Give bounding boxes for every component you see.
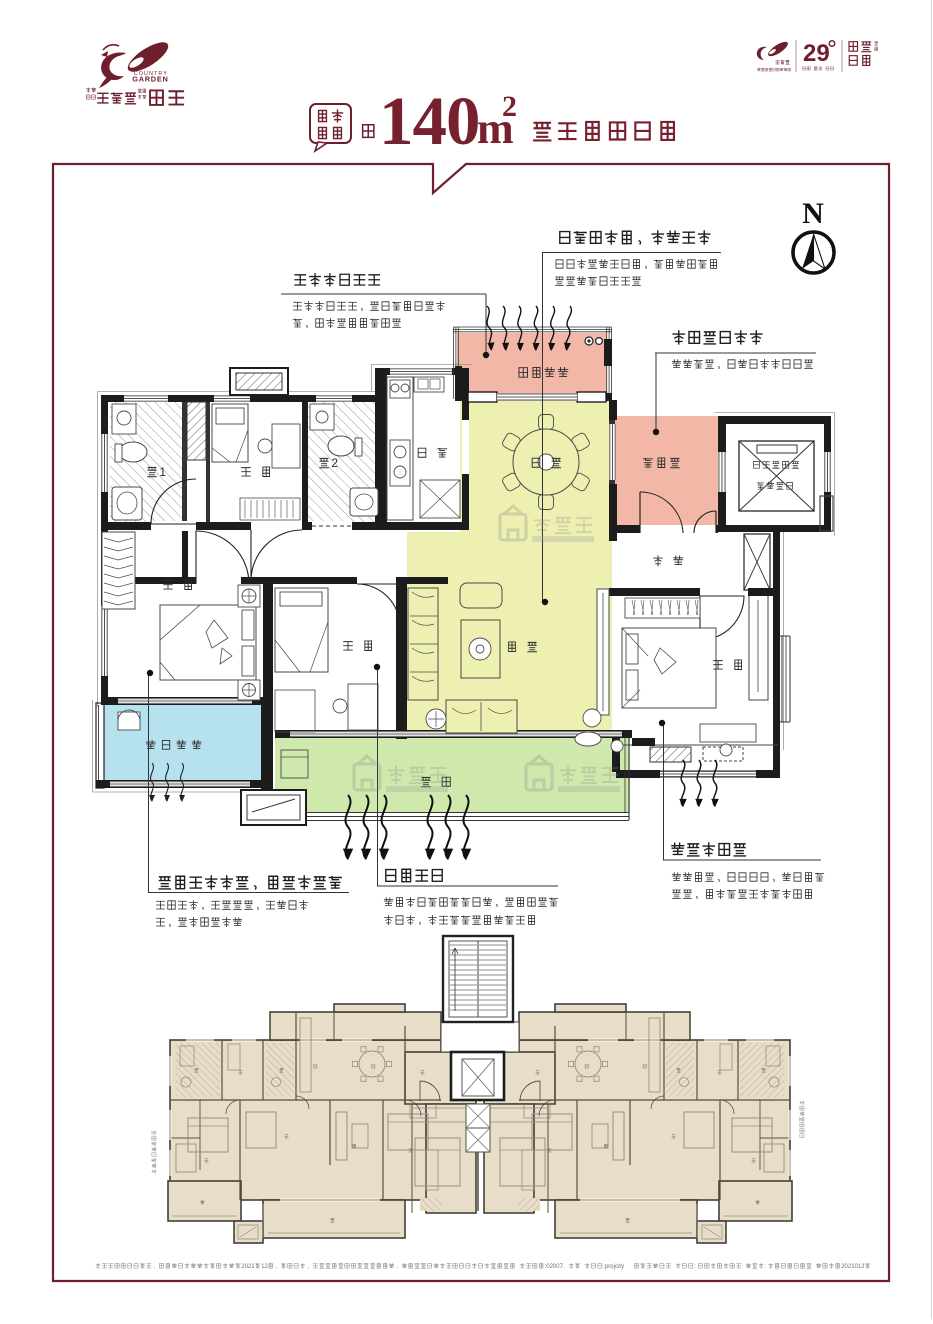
svg-text:12: 12 xyxy=(261,1264,268,1270)
svg-text::projcity: :projcity xyxy=(603,1264,624,1270)
svg-text::02007.: :02007. xyxy=(545,1264,565,1270)
svg-text:N: N xyxy=(802,197,824,230)
svg-text:1: 1 xyxy=(159,465,166,479)
svg-text:GARDEN: GARDEN xyxy=(132,75,168,84)
svg-text:2: 2 xyxy=(331,456,338,470)
svg-text:29: 29 xyxy=(803,40,830,67)
svg-text:2: 2 xyxy=(502,90,517,123)
svg-text:140: 140 xyxy=(379,83,480,159)
svg-text:2021013: 2021013 xyxy=(841,1264,865,1270)
svg-text:2021: 2021 xyxy=(241,1264,255,1270)
